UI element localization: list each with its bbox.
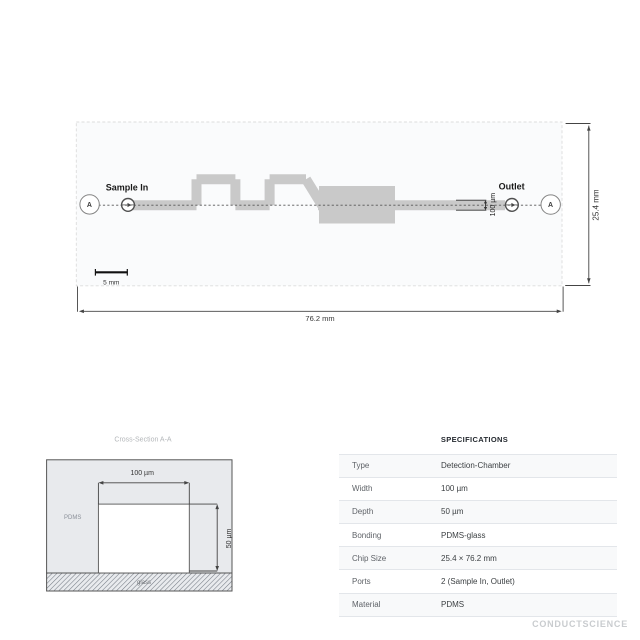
svg-text:A: A: [87, 202, 92, 209]
svg-text:76.2 mm: 76.2 mm: [305, 314, 334, 323]
svg-text:50 µm: 50 µm: [226, 528, 233, 548]
svg-text:100 µm: 100 µm: [490, 193, 497, 217]
svg-text:PDMS: PDMS: [64, 515, 81, 521]
svg-text:25.4 mm: 25.4 mm: [592, 189, 601, 220]
svg-text:100 µm: 100 µm: [130, 470, 154, 477]
svg-text:Sample In: Sample In: [106, 183, 149, 193]
svg-text:5 mm: 5 mm: [103, 280, 119, 287]
svg-text:Cross-Section A-A: Cross-Section A-A: [114, 436, 172, 443]
svg-text:Outlet: Outlet: [499, 182, 525, 192]
svg-text:A: A: [548, 202, 553, 209]
svg-text:glass: glass: [137, 580, 151, 586]
